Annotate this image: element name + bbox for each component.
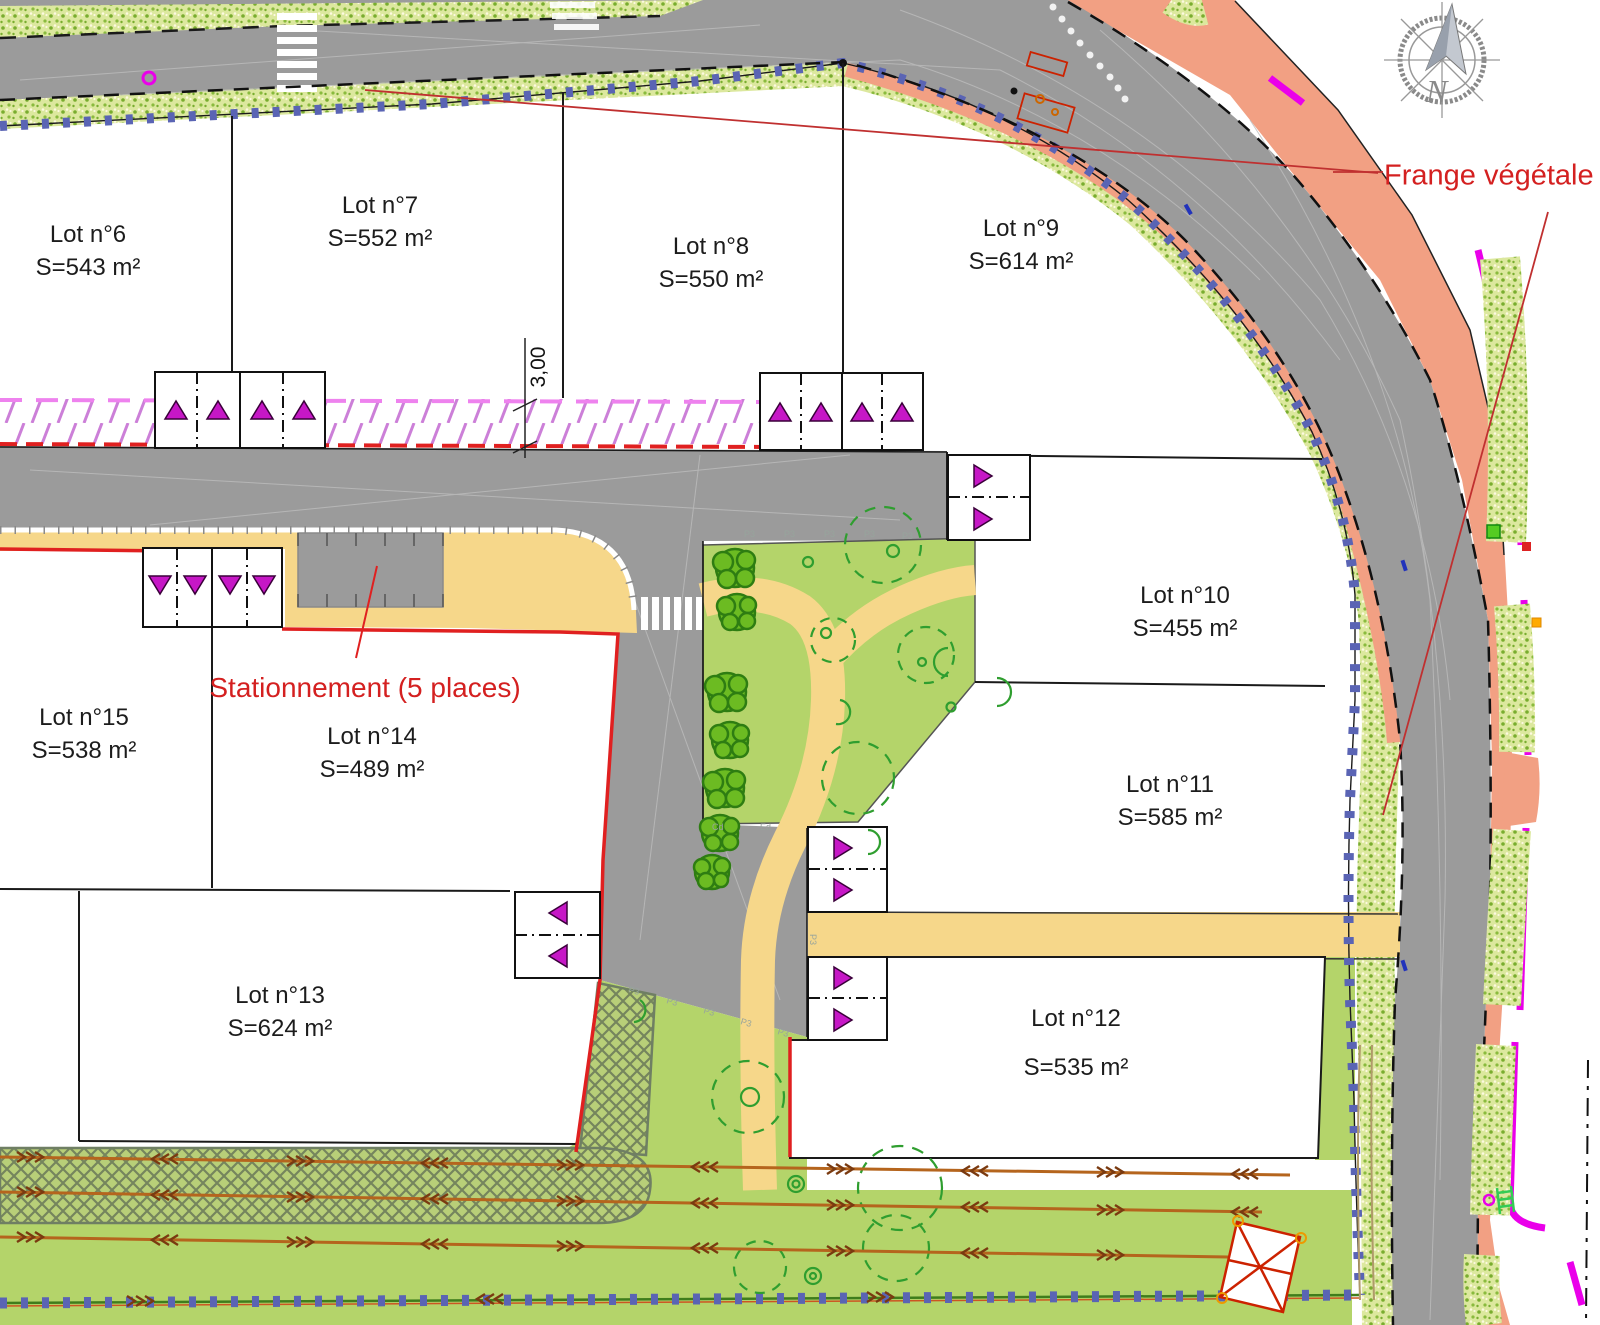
svg-text:P3: P3: [864, 529, 875, 539]
lot10-label: Lot n°10S=455 m²: [1133, 579, 1238, 645]
vegetal-fringe-annotation: Frange végétale: [1384, 160, 1594, 193]
compass-north-label: N: [1425, 73, 1449, 109]
lot7-label: Lot n°7S=552 m²: [328, 189, 433, 255]
svg-text:P3: P3: [902, 531, 913, 541]
red-box-icon: [1522, 542, 1531, 551]
outer-sidewalk-bulge: [1502, 752, 1540, 827]
svg-text:P3: P3: [784, 529, 795, 539]
compass-rose: N: [1384, 2, 1500, 118]
hatch-bottom-red-dashed-line: [0, 444, 775, 447]
crosswalk-top-partial: [550, 2, 599, 30]
hatched-reserve-strip: [0, 399, 775, 444]
svg-text:P3: P3: [744, 529, 755, 539]
svg-text:P3: P3: [808, 934, 818, 945]
green-box-icon: [1487, 525, 1500, 538]
lot14-label: Lot n°14S=489 m²: [320, 720, 425, 786]
subdivision-site-plan: N P3 P3 P3 P3 P3 P3 P3 P3 P3 P3 P3 Cd Ed…: [0, 0, 1600, 1325]
svg-text:P3: P3: [824, 529, 835, 539]
lot8-label: Lot n°8S=550 m²: [659, 230, 764, 296]
lot12-label: Lot n°12S=535 m²: [1024, 994, 1129, 1092]
svg-text:Cd: Cd: [712, 822, 724, 832]
lot6-label: Lot n°6S=543 m²: [36, 218, 141, 284]
lot9-label: Lot n°9S=614 m²: [969, 212, 1074, 278]
lot13-label: Lot n°13S=624 m²: [228, 979, 333, 1045]
yellow-path-east: [808, 912, 1400, 957]
lot11-label: Lot n°11S=585 m²: [1118, 768, 1223, 834]
orange-box-icon: [1532, 618, 1541, 627]
dimension-label: 3,00: [527, 347, 551, 388]
parking-annotation: Stationnement (5 places): [209, 672, 520, 704]
lot15-label: Lot n°15S=538 m²: [32, 701, 137, 767]
site-plan-drawing: N P3 P3 P3 P3 P3 P3 P3 P3 P3 P3 P3 Cd Ed: [0, 0, 1600, 1325]
svg-text:Ed: Ed: [760, 822, 771, 832]
footpath-crosshatch-vertical: [580, 983, 655, 1155]
